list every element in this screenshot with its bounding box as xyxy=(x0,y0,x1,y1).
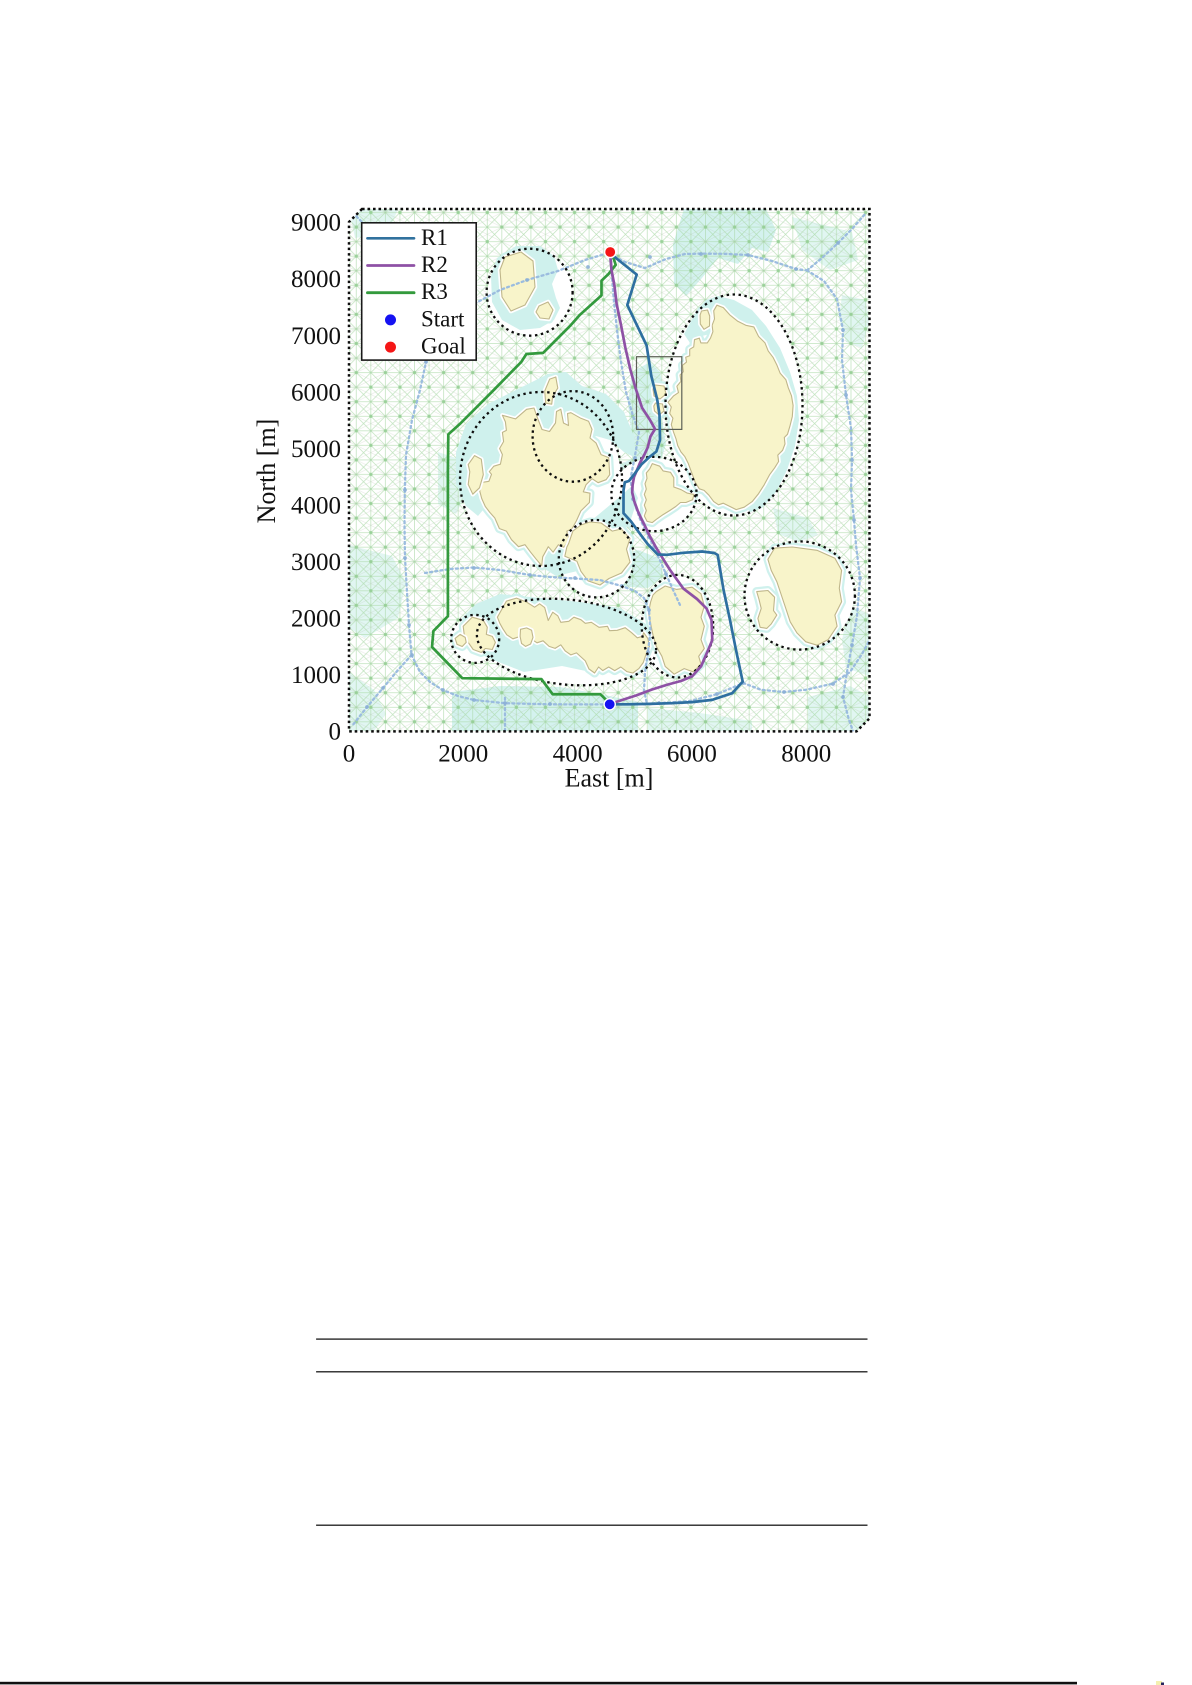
svg-text:8000: 8000 xyxy=(781,741,831,768)
svg-text:Goal: Goal xyxy=(421,334,466,359)
svg-text:1000: 1000 xyxy=(291,662,341,689)
svg-text:4000: 4000 xyxy=(291,492,341,519)
svg-text:2000: 2000 xyxy=(438,741,488,768)
svg-text:0: 0 xyxy=(329,719,342,746)
svg-text:6000: 6000 xyxy=(667,741,717,768)
svg-text:6000: 6000 xyxy=(291,379,341,406)
svg-text:Start: Start xyxy=(421,306,465,331)
svg-text:R2: R2 xyxy=(421,252,448,277)
svg-text:9000: 9000 xyxy=(291,210,341,237)
svg-text:8000: 8000 xyxy=(291,266,341,293)
svg-text:7000: 7000 xyxy=(291,323,341,350)
svg-text:3000: 3000 xyxy=(291,549,341,576)
svg-text:R3: R3 xyxy=(421,279,448,304)
svg-text:East [m]: East [m] xyxy=(565,764,654,793)
svg-text:2000: 2000 xyxy=(291,606,341,633)
svg-text:North [m]: North [m] xyxy=(252,419,281,524)
svg-text:R1: R1 xyxy=(421,225,448,250)
svg-text:0: 0 xyxy=(343,741,356,768)
svg-text:5000: 5000 xyxy=(291,436,341,463)
